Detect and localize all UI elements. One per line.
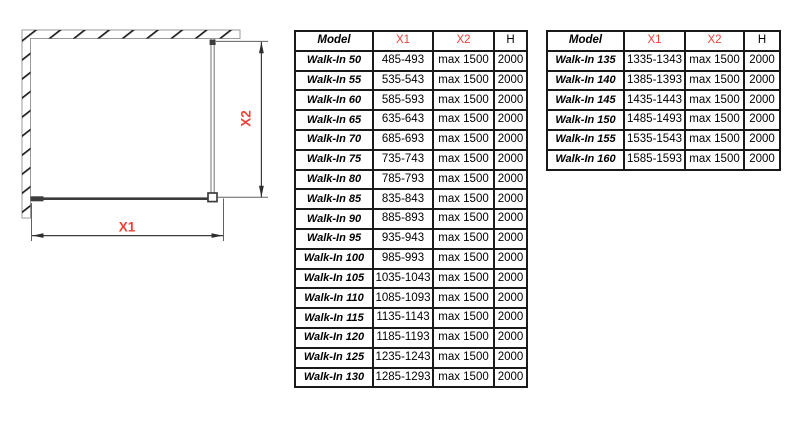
model-cell: Walk-In 135 bbox=[547, 51, 624, 71]
arrowhead-down-icon bbox=[259, 186, 264, 198]
x1-cell: 535-543 bbox=[373, 71, 433, 91]
x2-cell: max 1500 bbox=[685, 110, 744, 130]
x2-cell: max 1500 bbox=[433, 170, 494, 190]
model-cell: Walk-In 100 bbox=[295, 249, 373, 269]
model-cell: Walk-In 70 bbox=[295, 130, 373, 150]
x2-cell: max 1500 bbox=[685, 150, 744, 170]
h-cell: 2000 bbox=[494, 150, 527, 170]
x2-cell: max 1500 bbox=[433, 150, 494, 170]
col-header-model: Model bbox=[295, 31, 373, 51]
spec-table-models-135-160: Model X1 X2 H Walk-In 135 1335-1343 max … bbox=[546, 30, 781, 171]
x1-cell: 1085-1093 bbox=[373, 288, 433, 308]
spec-row: Walk-In 80 785-793 max 1500 2000 bbox=[295, 170, 527, 190]
spec-row: Walk-In 120 1185-1193 max 1500 2000 bbox=[295, 328, 527, 348]
spec-row: Walk-In 85 835-843 max 1500 2000 bbox=[295, 189, 527, 209]
h-cell: 2000 bbox=[494, 249, 527, 269]
h-cell: 2000 bbox=[494, 288, 527, 308]
spec-row: Walk-In 75 735-743 max 1500 2000 bbox=[295, 150, 527, 170]
spec-table-1-body: Walk-In 50 485-493 max 1500 2000 Walk-In… bbox=[295, 51, 527, 388]
header-row: Model X1 X2 H bbox=[295, 31, 527, 51]
x1-cell: 885-893 bbox=[373, 209, 433, 229]
h-cell: 2000 bbox=[744, 71, 780, 91]
x2-cell: max 1500 bbox=[433, 229, 494, 249]
header-row: Model X1 X2 H bbox=[547, 31, 780, 51]
spec-row: Walk-In 130 1285-1293 max 1500 2000 bbox=[295, 368, 527, 388]
model-cell: Walk-In 65 bbox=[295, 110, 373, 130]
x1-cell: 1535-1543 bbox=[624, 130, 685, 150]
h-cell: 2000 bbox=[494, 328, 527, 348]
x1-cell: 985-993 bbox=[373, 249, 433, 269]
model-cell: Walk-In 140 bbox=[547, 71, 624, 91]
x1-cell: 485-493 bbox=[373, 51, 433, 71]
spec-row: Walk-In 50 485-493 max 1500 2000 bbox=[295, 51, 527, 71]
x2-cell: max 1500 bbox=[433, 288, 494, 308]
x1-cell: 735-743 bbox=[373, 150, 433, 170]
x1-cell: 1185-1193 bbox=[373, 328, 433, 348]
h-cell: 2000 bbox=[744, 90, 780, 110]
wall-bracket bbox=[210, 40, 216, 45]
spec-row: Walk-In 70 685-693 max 1500 2000 bbox=[295, 130, 527, 150]
spec-row: Walk-In 115 1135-1143 max 1500 2000 bbox=[295, 308, 527, 328]
x1-cell: 685-693 bbox=[373, 130, 433, 150]
x2-cell: max 1500 bbox=[685, 130, 744, 150]
x2-cell: max 1500 bbox=[433, 348, 494, 368]
h-cell: 2000 bbox=[744, 51, 780, 71]
x1-cell: 585-593 bbox=[373, 90, 433, 110]
x1-cell: 1435-1443 bbox=[624, 90, 685, 110]
x2-cell: max 1500 bbox=[685, 51, 744, 71]
x2-cell: max 1500 bbox=[685, 71, 744, 91]
model-cell: Walk-In 120 bbox=[295, 328, 373, 348]
model-cell: Walk-In 145 bbox=[547, 90, 624, 110]
model-cell: Walk-In 130 bbox=[295, 368, 373, 388]
walk-in-plan-drawing: X1 X2 bbox=[0, 0, 290, 280]
col-header-x1: X1 bbox=[373, 31, 433, 51]
h-cell: 2000 bbox=[494, 51, 527, 71]
x1-cell: 1135-1143 bbox=[373, 308, 433, 328]
spec-row: Walk-In 90 885-893 max 1500 2000 bbox=[295, 209, 527, 229]
h-cell: 2000 bbox=[494, 348, 527, 368]
model-cell: Walk-In 95 bbox=[295, 229, 373, 249]
spec-row: Walk-In 105 1035-1043 max 1500 2000 bbox=[295, 269, 527, 289]
arrowhead-right-icon bbox=[212, 233, 224, 238]
spec-row: Walk-In 135 1335-1343 max 1500 2000 bbox=[547, 51, 780, 71]
glass-panel bbox=[31, 193, 218, 202]
x1-cell: 1035-1043 bbox=[373, 269, 433, 289]
support-bar bbox=[210, 39, 216, 197]
x1-cell: 1585-1593 bbox=[624, 150, 685, 170]
model-cell: Walk-In 55 bbox=[295, 71, 373, 91]
model-cell: Walk-In 80 bbox=[295, 170, 373, 190]
x2-cell: max 1500 bbox=[433, 189, 494, 209]
h-cell: 2000 bbox=[494, 110, 527, 130]
model-cell: Walk-In 85 bbox=[295, 189, 373, 209]
model-cell: Walk-In 90 bbox=[295, 209, 373, 229]
arrowhead-left-icon bbox=[32, 233, 44, 238]
col-header-h: H bbox=[744, 31, 780, 51]
arrowhead-up-icon bbox=[259, 42, 264, 54]
h-cell: 2000 bbox=[494, 269, 527, 289]
spec-row: Walk-In 155 1535-1543 max 1500 2000 bbox=[547, 130, 780, 150]
glass-clamp bbox=[208, 193, 217, 202]
model-cell: Walk-In 115 bbox=[295, 308, 373, 328]
model-cell: Walk-In 155 bbox=[547, 130, 624, 150]
x1-cell: 935-943 bbox=[373, 229, 433, 249]
x2-label: X2 bbox=[239, 110, 254, 127]
x2-cell: max 1500 bbox=[433, 368, 494, 388]
x2-cell: max 1500 bbox=[685, 90, 744, 110]
technical-diagram: X1 X2 bbox=[0, 0, 290, 280]
x1-cell: 635-643 bbox=[373, 110, 433, 130]
x2-cell: max 1500 bbox=[433, 90, 494, 110]
h-cell: 2000 bbox=[494, 71, 527, 91]
spec-row: Walk-In 110 1085-1093 max 1500 2000 bbox=[295, 288, 527, 308]
x2-cell: max 1500 bbox=[433, 249, 494, 269]
x1-cell: 1385-1393 bbox=[624, 71, 685, 91]
x2-cell: max 1500 bbox=[433, 308, 494, 328]
dimension-x1: X1 bbox=[32, 220, 223, 238]
col-header-model: Model bbox=[547, 31, 624, 51]
spec-table-2-body: Walk-In 135 1335-1343 max 1500 2000 Walk… bbox=[547, 51, 780, 170]
h-cell: 2000 bbox=[494, 130, 527, 150]
model-cell: Walk-In 105 bbox=[295, 269, 373, 289]
col-header-h: H bbox=[494, 31, 527, 51]
x1-cell: 1285-1293 bbox=[373, 368, 433, 388]
h-cell: 2000 bbox=[494, 189, 527, 209]
x2-cell: max 1500 bbox=[433, 71, 494, 91]
spec-row: Walk-In 100 985-993 max 1500 2000 bbox=[295, 249, 527, 269]
model-cell: Walk-In 160 bbox=[547, 150, 624, 170]
x1-cell: 1335-1343 bbox=[624, 51, 685, 71]
spec-row: Walk-In 150 1485-1493 max 1500 2000 bbox=[547, 110, 780, 130]
model-cell: Walk-In 50 bbox=[295, 51, 373, 71]
model-cell: Walk-In 75 bbox=[295, 150, 373, 170]
h-cell: 2000 bbox=[494, 308, 527, 328]
wall-hatched bbox=[22, 30, 240, 218]
x1-cell: 1235-1243 bbox=[373, 348, 433, 368]
spec-table-models-50-130: Model X1 X2 H Walk-In 50 485-493 max 150… bbox=[294, 30, 528, 388]
spec-row: Walk-In 140 1385-1393 max 1500 2000 bbox=[547, 71, 780, 91]
model-cell: Walk-In 110 bbox=[295, 288, 373, 308]
x1-label: X1 bbox=[119, 220, 136, 235]
spec-row: Walk-In 160 1585-1593 max 1500 2000 bbox=[547, 150, 780, 170]
spec-row: Walk-In 65 635-643 max 1500 2000 bbox=[295, 110, 527, 130]
h-cell: 2000 bbox=[744, 110, 780, 130]
extension-lines bbox=[32, 41, 269, 241]
model-cell: Walk-In 150 bbox=[547, 110, 624, 130]
x1-cell: 785-793 bbox=[373, 170, 433, 190]
x2-cell: max 1500 bbox=[433, 130, 494, 150]
h-cell: 2000 bbox=[494, 229, 527, 249]
datasheet-page: X1 X2 Model X1 X2 H Walk-In 50 bbox=[0, 0, 800, 439]
model-cell: Walk-In 60 bbox=[295, 90, 373, 110]
dimension-x2: X2 bbox=[239, 42, 264, 197]
h-cell: 2000 bbox=[744, 150, 780, 170]
h-cell: 2000 bbox=[494, 368, 527, 388]
spec-row: Walk-In 60 585-593 max 1500 2000 bbox=[295, 90, 527, 110]
model-cell: Walk-In 125 bbox=[295, 348, 373, 368]
h-cell: 2000 bbox=[494, 90, 527, 110]
col-header-x2: X2 bbox=[685, 31, 744, 51]
spec-row: Walk-In 145 1435-1443 max 1500 2000 bbox=[547, 90, 780, 110]
h-cell: 2000 bbox=[494, 209, 527, 229]
spec-row: Walk-In 125 1235-1243 max 1500 2000 bbox=[295, 348, 527, 368]
spec-row: Walk-In 95 935-943 max 1500 2000 bbox=[295, 229, 527, 249]
x2-cell: max 1500 bbox=[433, 110, 494, 130]
x1-cell: 1485-1493 bbox=[624, 110, 685, 130]
x2-cell: max 1500 bbox=[433, 209, 494, 229]
x2-cell: max 1500 bbox=[433, 51, 494, 71]
col-header-x1: X1 bbox=[624, 31, 685, 51]
h-cell: 2000 bbox=[744, 130, 780, 150]
x1-cell: 835-843 bbox=[373, 189, 433, 209]
col-header-x2: X2 bbox=[433, 31, 494, 51]
x2-cell: max 1500 bbox=[433, 269, 494, 289]
x2-cell: max 1500 bbox=[433, 328, 494, 348]
h-cell: 2000 bbox=[494, 170, 527, 190]
spec-row: Walk-In 55 535-543 max 1500 2000 bbox=[295, 71, 527, 91]
